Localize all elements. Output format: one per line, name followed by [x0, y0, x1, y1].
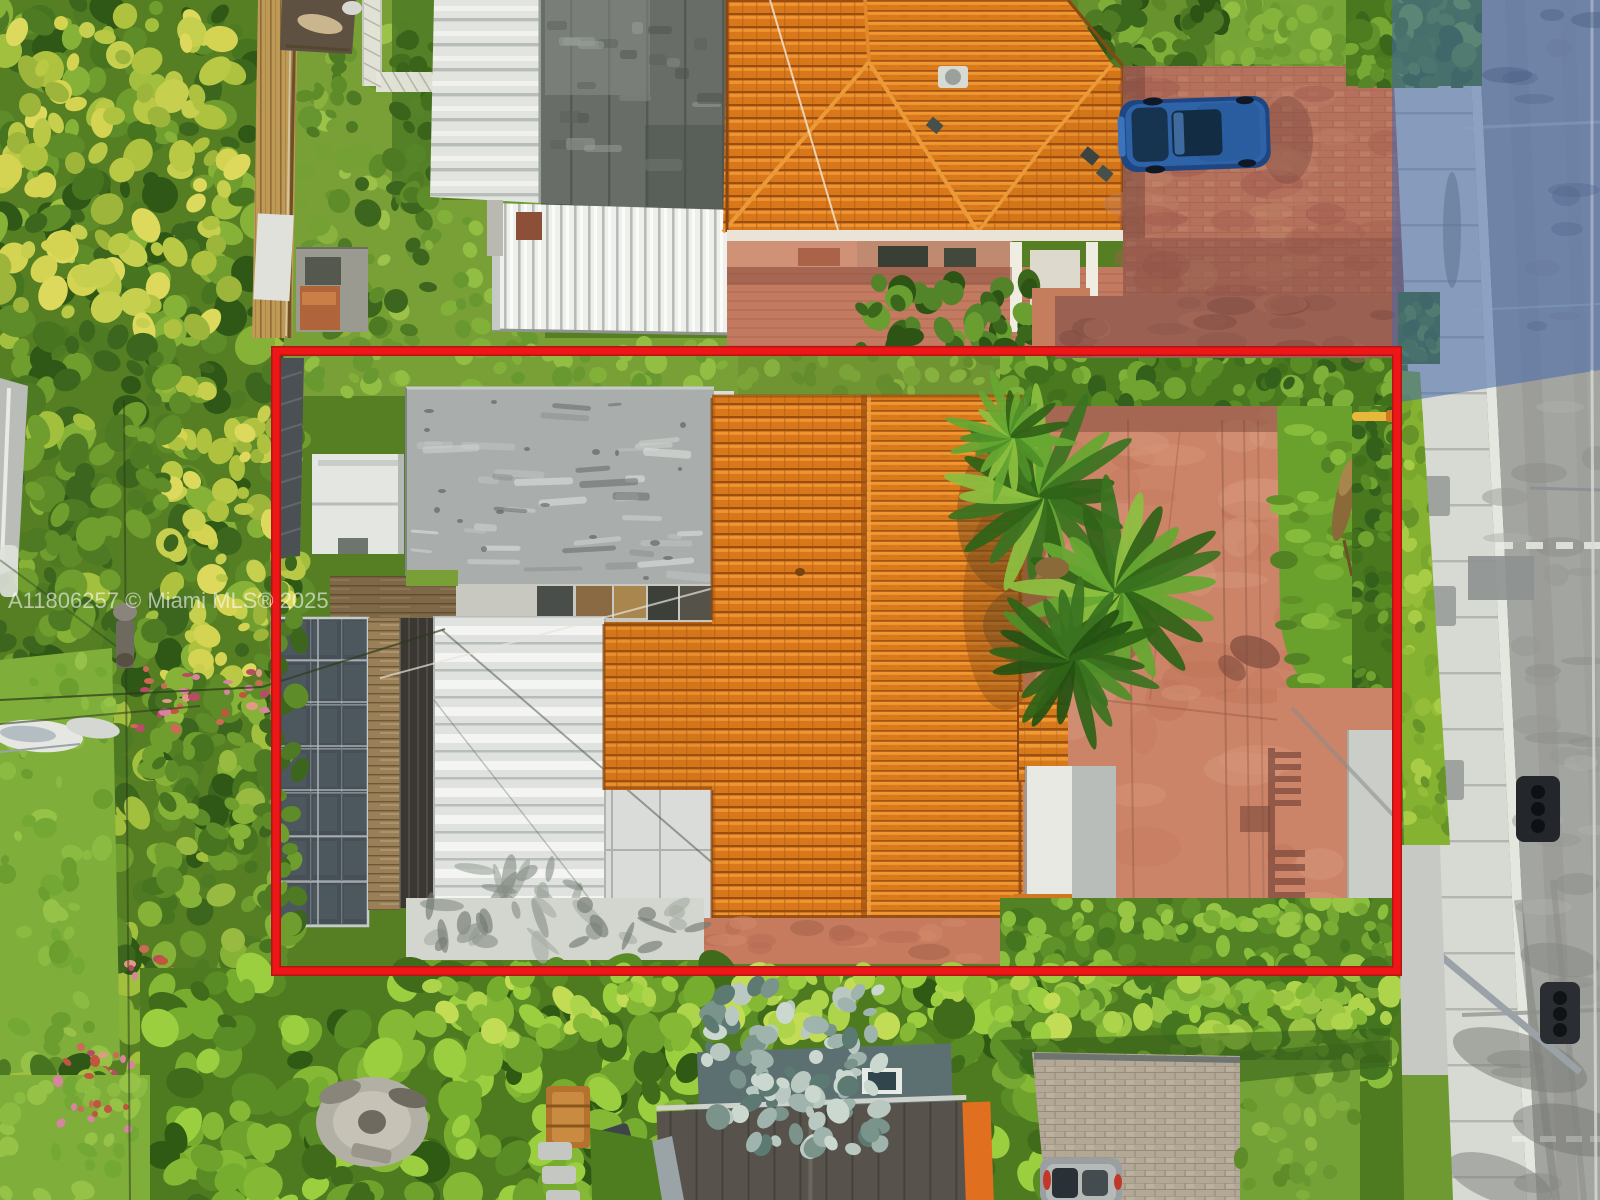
svg-text:A11806257 © Miami MLS® 2025: A11806257 © Miami MLS® 2025 [8, 588, 329, 613]
